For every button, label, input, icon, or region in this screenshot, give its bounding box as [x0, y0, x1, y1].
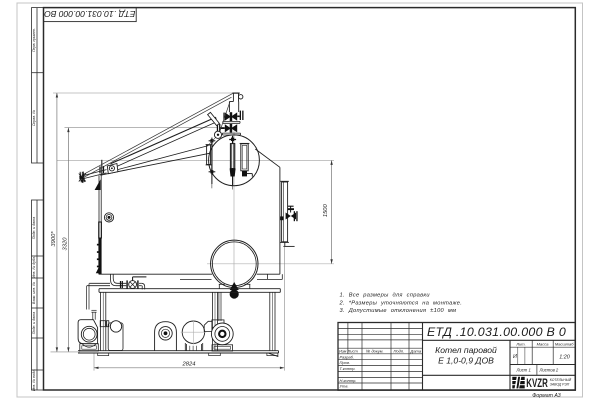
svg-text:1:20: 1:20	[559, 355, 570, 361]
svg-text:KVZR: KVZR	[526, 378, 548, 390]
svg-text:Перв. примен.: Перв. примен.	[32, 28, 36, 52]
svg-text:Н.контр.: Н.контр.	[340, 378, 357, 383]
svg-text:Разраб.: Разраб.	[340, 354, 354, 359]
svg-text:Е 1,0-0,9 ДОВ: Е 1,0-0,9 ДОВ	[438, 356, 494, 366]
svg-text:№ докум.: № докум.	[366, 348, 384, 353]
svg-text:Изм Лист: Изм Лист	[339, 348, 358, 353]
svg-text:1. Все размеры для справки: 1. Все размеры для справки	[340, 293, 431, 299]
svg-text:3900*: 3900*	[51, 231, 57, 247]
svg-text:Взам. инв. №: Взам. инв. №	[32, 282, 36, 304]
svg-text:Масса: Масса	[537, 342, 550, 347]
svg-text:Справ. №: Справ. №	[32, 110, 36, 126]
svg-text:Подп.: Подп.	[394, 348, 405, 353]
svg-text:Инв. № подл.: Инв. № подл.	[32, 369, 36, 391]
svg-text:Т.контр.: Т.контр.	[340, 366, 356, 371]
svg-text:Пров.: Пров.	[340, 360, 351, 365]
svg-text:Подп. и дата: Подп. и дата	[32, 217, 36, 240]
svg-text:3. Допустимые отклонения ±10: 3. Допустимые отклонения ±100 мм	[340, 308, 457, 314]
svg-text:И: И	[513, 354, 517, 360]
svg-text:Формат А3: Формат А3	[532, 393, 560, 399]
svg-text:Подп. и дата: Подп. и дата	[32, 312, 36, 335]
svg-text:3320: 3320	[63, 237, 69, 251]
svg-text:Лит.: Лит.	[515, 342, 525, 347]
svg-text:Листов 2: Листов 2	[539, 368, 559, 373]
svg-text:Инв. № дубл.: Инв. № дубл.	[32, 256, 36, 278]
svg-text:ЕТД .10.031.00.000 В 0: ЕТД .10.031.00.000 В 0	[427, 325, 566, 339]
svg-text:КОТЕЛЬНЫЙ: КОТЕЛЬНЫЙ	[550, 378, 572, 382]
svg-text:1500: 1500	[323, 203, 329, 217]
svg-text:Дата: Дата	[410, 348, 422, 353]
svg-text:ЗАВОД РЭП: ЗАВОД РЭП	[550, 383, 570, 387]
svg-text:Масштаб: Масштаб	[555, 342, 574, 347]
svg-text:2824: 2824	[182, 362, 196, 368]
svg-text:Лист 1: Лист 1	[516, 368, 531, 373]
svg-text:ЕТД .10.031.00.000 ВО: ЕТД .10.031.00.000 ВО	[44, 9, 136, 19]
svg-text:2. *Размеры уточняются на мон: 2. *Размеры уточняются на монтаже.	[339, 300, 463, 306]
svg-text:Котел паровой: Котел паровой	[435, 345, 497, 355]
svg-text:Утв.: Утв.	[340, 384, 349, 389]
